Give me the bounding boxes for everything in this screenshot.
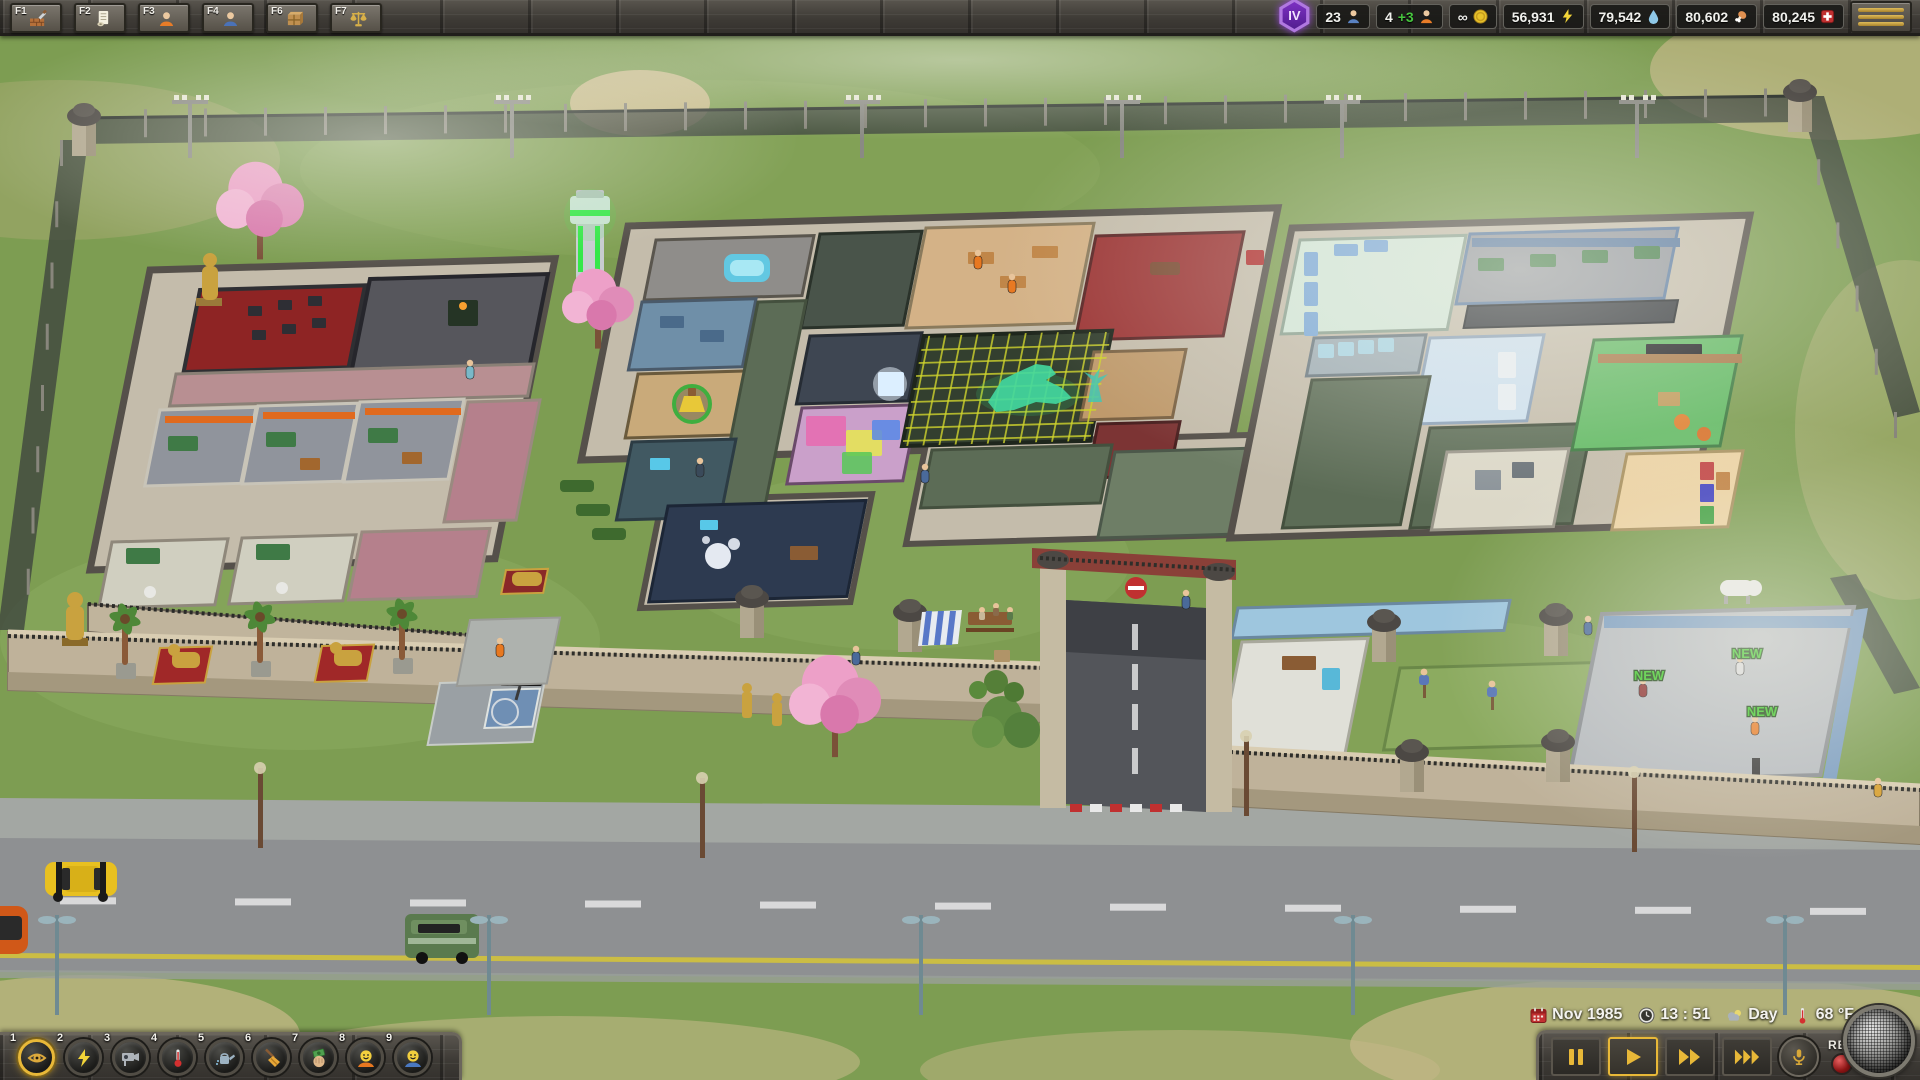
water-icon [1646, 9, 1661, 24]
contracts-button[interactable]: F2 [74, 3, 126, 33]
staff-button[interactable]: F4 [202, 3, 254, 33]
objects-icon [286, 10, 303, 27]
top-bar: F1 F2 F3 F4 F6 F7 IV 23 [0, 0, 1920, 36]
prisoner-mood-overlay-button[interactable]: 8 [347, 1039, 384, 1076]
prisoners-icon [158, 10, 175, 27]
level-badge[interactable]: IV [1278, 0, 1310, 33]
day-phase-value: Day [1748, 1006, 1777, 1024]
temperature-display: 68 °F [1794, 1006, 1854, 1024]
staff-mood-icon [403, 1048, 423, 1068]
medical-value: 80,245 [1772, 9, 1815, 25]
prisoner-icon [1419, 9, 1434, 24]
person[interactable] [696, 458, 704, 477]
hotkey-label: F3 [143, 6, 155, 17]
cleaning-overlay-button[interactable]: 6 [253, 1039, 290, 1076]
coin-icon [1473, 9, 1488, 24]
person[interactable] [852, 646, 860, 665]
contracts-icon [94, 10, 111, 27]
cash-in-hand-icon [309, 1048, 329, 1068]
camera-overlay-button[interactable]: 3 [112, 1039, 149, 1076]
prisoner-incoming-value: +3 [1398, 9, 1414, 25]
water-value: 79,542 [1599, 9, 1642, 25]
taxi [45, 862, 117, 902]
tool-number: 3 [104, 1032, 110, 1044]
person[interactable] [496, 638, 504, 657]
tool-number: 5 [198, 1032, 204, 1044]
person[interactable] [466, 360, 474, 379]
tool-number: 9 [386, 1032, 392, 1044]
hotkey-label: F1 [15, 6, 27, 17]
hotkey-label: F4 [207, 6, 219, 17]
fast-forward-icon [1677, 1048, 1703, 1066]
tool-number: 7 [292, 1032, 298, 1044]
eye-icon [27, 1048, 47, 1068]
pause-icon [1563, 1048, 1589, 1066]
staff-icon [222, 10, 239, 27]
broom-icon [262, 1048, 282, 1068]
hotkey-label: F7 [335, 6, 347, 17]
power-pill[interactable]: 56,931 [1503, 4, 1584, 29]
time-value: 13 : 51 [1660, 1006, 1710, 1024]
status-row: Nov 1985 13 : 51 Day 68 °F [1530, 1006, 1854, 1024]
person[interactable] [974, 250, 982, 269]
calendar-icon [1530, 1007, 1547, 1024]
pause-button[interactable] [1551, 1037, 1601, 1076]
playback-bar: REC [1536, 1030, 1920, 1080]
resource-bar: IV 23 4 +3 ∞ 56,931 79,542 80,602 80,245 [1278, 3, 1912, 30]
food-icon [1733, 9, 1748, 24]
fast-forward-button[interactable] [1665, 1037, 1715, 1076]
play-icon [1620, 1048, 1646, 1066]
orange-car [0, 906, 28, 954]
cash-overlay-button[interactable]: 7 [300, 1039, 337, 1076]
tool-number: 1 [10, 1032, 16, 1044]
overlay-toolbar: 1 2 3 4 5 6 7 8 9 [0, 1032, 462, 1080]
objects-button[interactable]: F6 [266, 3, 318, 33]
fastest-forward-icon [1734, 1048, 1760, 1066]
tool-number: 6 [245, 1032, 251, 1044]
tool-number: 2 [57, 1032, 63, 1044]
power-overlay-icon [74, 1048, 94, 1068]
medical-icon [1820, 9, 1835, 24]
date-display: Nov 1985 [1530, 1006, 1622, 1024]
staff-icon [1346, 9, 1361, 24]
weather-display: Day [1726, 1006, 1777, 1024]
power-value: 56,931 [1512, 9, 1555, 25]
hotkey-label: F6 [271, 6, 283, 17]
power-overlay-button[interactable]: 2 [65, 1039, 102, 1076]
money-pill[interactable]: ∞ [1449, 4, 1497, 29]
watering-overlay-button[interactable]: 5 [206, 1039, 243, 1076]
security-camera-icon [121, 1048, 141, 1068]
prisoner-count-pill[interactable]: 4 +3 [1376, 4, 1443, 29]
microphone-icon [1790, 1048, 1808, 1066]
food-value: 80,602 [1685, 9, 1728, 25]
staff-count-pill[interactable]: 23 [1316, 4, 1370, 29]
watering-can-icon [215, 1048, 235, 1068]
build-button[interactable]: F1 [10, 3, 62, 33]
prisoner-mood-icon [356, 1048, 376, 1068]
time-display: 13 : 51 [1638, 1006, 1710, 1024]
staff-count-value: 23 [1325, 9, 1341, 25]
fastest-forward-button[interactable] [1722, 1037, 1772, 1076]
water-pill[interactable]: 79,542 [1590, 4, 1671, 29]
food-pill[interactable]: 80,602 [1676, 4, 1757, 29]
hamburger-icon [1858, 8, 1904, 12]
speaker-grille[interactable] [1843, 1005, 1915, 1077]
overview-tool-button[interactable]: 1 [18, 1039, 55, 1076]
person[interactable] [921, 464, 929, 483]
mic-button[interactable] [1779, 1037, 1819, 1077]
power-icon [1560, 9, 1575, 24]
menu-button[interactable] [1850, 1, 1912, 33]
policy-button[interactable]: F7 [330, 3, 382, 33]
temperature-icon [168, 1048, 188, 1068]
game-viewport[interactable]: NEWNEWNEW [0, 0, 1920, 1080]
date-value: Nov 1985 [1552, 1006, 1622, 1024]
medical-pill[interactable]: 80,245 [1763, 4, 1844, 29]
thermometer-icon [1794, 1007, 1811, 1024]
weather-icon [1726, 1007, 1743, 1024]
play-button[interactable] [1608, 1037, 1658, 1076]
staff-mood-overlay-button[interactable]: 9 [394, 1039, 431, 1076]
prisoner-count-value: 4 [1385, 9, 1393, 25]
policy-icon [350, 10, 367, 27]
level-badge-value: IV [1282, 2, 1307, 29]
prisoners-button[interactable]: F3 [138, 3, 190, 33]
green-van [405, 914, 479, 964]
money-value: ∞ [1458, 9, 1468, 25]
clock-icon [1638, 1007, 1655, 1024]
tool-number: 4 [151, 1032, 157, 1044]
hotkey-label: F2 [79, 6, 91, 17]
build-icon [30, 10, 47, 27]
tool-number: 8 [339, 1032, 345, 1044]
temperature-overlay-button[interactable]: 4 [159, 1039, 196, 1076]
hotkey-bar: F1 F2 F3 F4 F6 F7 [10, 3, 382, 33]
person[interactable] [1182, 590, 1190, 609]
